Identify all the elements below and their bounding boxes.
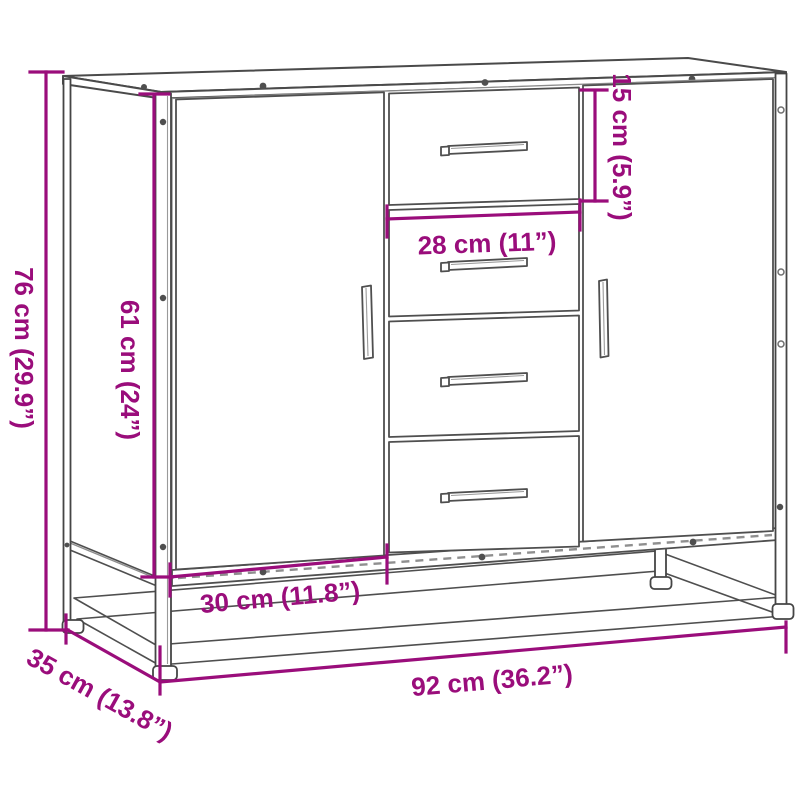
drawer-width-dimension-label: 28 cm (11”): [417, 226, 557, 261]
screw: [778, 341, 784, 347]
drawer-stack: [389, 88, 579, 553]
back-right-leg-post: [655, 548, 666, 580]
height-dimension-label: 76 cm (29.9”): [9, 267, 39, 429]
drawer-height-dimension-label: 15 cm (5.9”): [607, 73, 637, 220]
door-height-dimension-label: 61 cm (24”): [115, 300, 145, 440]
screw: [260, 83, 267, 90]
left-door: [176, 92, 384, 569]
screw: [160, 119, 166, 125]
left-door-front: [176, 92, 384, 569]
front-right-foot: [773, 604, 794, 619]
screw: [778, 107, 784, 113]
screw: [482, 79, 489, 86]
dimension-diagram-page: 76 cm (29.9”) 61 cm (24”) 15 cm (5.9”) 2…: [0, 0, 800, 800]
screw: [160, 295, 166, 301]
screw: [160, 544, 166, 550]
back-right-foot: [651, 577, 672, 589]
screw: [65, 543, 70, 548]
sideboard-dimension-diagram: 76 cm (29.9”) 61 cm (24”) 15 cm (5.9”) 2…: [0, 0, 800, 800]
screw: [141, 84, 147, 90]
screw: [479, 554, 486, 561]
screw: [778, 269, 784, 275]
screw: [690, 539, 697, 546]
front-face: [172, 78, 778, 587]
screw: [777, 504, 783, 510]
front-left-foot: [153, 666, 177, 680]
